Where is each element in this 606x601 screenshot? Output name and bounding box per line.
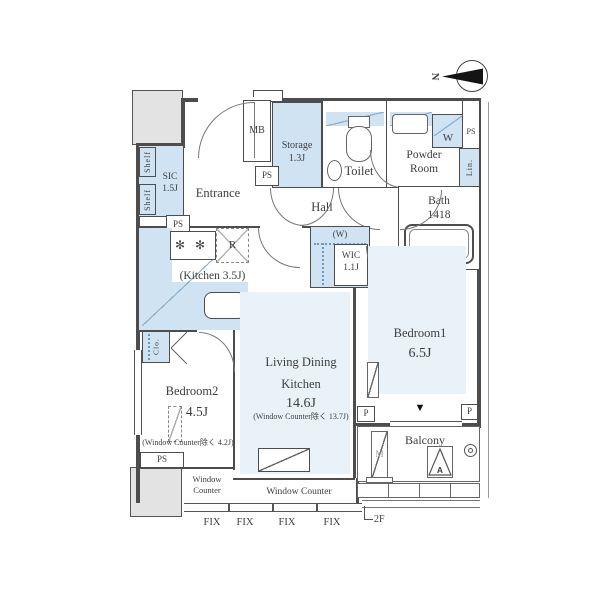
ps-mid-label: PS — [262, 170, 272, 181]
balcony-divider: M — [371, 431, 388, 479]
storage-door-arc — [270, 188, 304, 226]
railing-divider — [419, 484, 420, 497]
floor-label: 2F — [374, 514, 396, 527]
bedroom2-size: 4.5J — [142, 404, 252, 421]
wic-name: WIC — [335, 251, 367, 263]
wic-rail-v — [322, 243, 324, 285]
stove: ✻ ✻ — [170, 231, 216, 260]
bedroom1-label: Bedroom1 — [365, 326, 475, 342]
fridge-label: R — [217, 229, 248, 262]
wall-bedroom2-ldk — [233, 330, 235, 470]
balcony-railing — [357, 483, 480, 498]
hall-door-arc — [300, 188, 334, 226]
p-right-label: P — [467, 406, 472, 417]
toilet-bowl — [346, 126, 372, 162]
closet-fold-door-2 — [171, 348, 187, 364]
ps-entrance-label: PS — [173, 219, 183, 230]
bedroom1-floor — [368, 246, 466, 394]
storage-name: Storage — [272, 140, 322, 153]
fridge-space: R — [216, 228, 249, 263]
fix-mullion — [316, 504, 318, 511]
wc-small-line1: Window — [180, 474, 234, 485]
p-left-label: P — [363, 408, 368, 419]
fix-label-4: FIX — [312, 516, 352, 529]
hatch-label: A — [428, 465, 452, 476]
wic-inner: WIC 1.1J — [334, 244, 368, 286]
linen-label: Lin. — [465, 159, 475, 176]
floor-bracket — [364, 506, 373, 520]
burner-icon: ✻ — [195, 238, 205, 253]
burner-icon: ✻ — [175, 238, 185, 253]
entrance-door-leaf — [254, 102, 255, 158]
wic-label: WIC 1.1J — [335, 251, 367, 275]
floor-plan: Shelf Shelf SIC 1.5J PS Entrance MB Stor… — [0, 0, 606, 601]
compass-north-label: N — [428, 70, 441, 83]
building-edge-line — [488, 102, 489, 498]
ps-right-label: PS — [467, 127, 476, 137]
p-marker-right: P — [461, 404, 478, 420]
bedroom2-closet-label: Clo. — [143, 332, 169, 362]
entrance-label: Entrance — [182, 186, 254, 202]
balcony-label: Balcony — [380, 433, 470, 448]
wic-w-label: (W) — [318, 229, 362, 240]
ldk-door-arc — [258, 228, 300, 268]
bedroom1-size: 6.5J — [365, 345, 475, 363]
bedroom2-closet: Clo. — [142, 331, 170, 363]
entry-pointer: ▼ — [406, 402, 434, 416]
fix-window-band — [184, 503, 362, 512]
toilet-door-arc — [338, 188, 380, 230]
ps-bedroom2-label: PS — [157, 454, 167, 465]
wall-left-upper — [181, 98, 185, 148]
entrance-door-arc — [198, 102, 254, 158]
ldk-line1: Living Dining — [245, 355, 357, 371]
kitchen-label: (Kitchen 3.5J) — [150, 269, 275, 283]
balcony-drain-inner — [468, 448, 473, 453]
linen-box: Lin. — [459, 148, 480, 188]
wic-size: 1.1J — [335, 263, 367, 275]
fix-label-3: FIX — [267, 516, 307, 529]
washer-label: W — [432, 132, 464, 146]
bedroom2-door-arc — [199, 332, 235, 372]
storage-label: Storage 1.3J — [272, 140, 322, 165]
ldk-line2: Kitchen — [245, 377, 357, 393]
vanity — [392, 114, 428, 134]
bedroom1-leaf — [367, 362, 379, 398]
ldk-counter-board — [258, 448, 310, 472]
structure-block-top-left — [132, 90, 183, 145]
bedroom2-label: Bedroom2 — [137, 384, 247, 400]
fix-mullion — [272, 504, 274, 511]
railing-divider — [450, 484, 451, 497]
ps-mid: PS — [255, 166, 279, 186]
ldk-note: (Window Counter除く 13.7J) — [238, 412, 364, 422]
sic-name: SIC — [150, 172, 190, 184]
shelf-top-label: Shelf — [143, 151, 153, 173]
closet-rail — [148, 334, 150, 360]
wc-small-line2: Counter — [180, 485, 234, 496]
wall-ldk-bottom — [233, 478, 355, 480]
balcony-divider-label: M — [372, 432, 387, 478]
wc-bedroom2-label: Window Counter — [180, 474, 234, 495]
ps-bedroom2: PS — [140, 452, 184, 468]
ldk-size: 14.6J — [245, 395, 357, 413]
evacuation-hatch: A — [427, 446, 453, 478]
closet-fold-door-1 — [171, 332, 187, 348]
wc-ldk-label: Window Counter — [240, 487, 358, 499]
bedroom2-desk — [168, 406, 182, 442]
storage-size: 1.3J — [272, 153, 322, 166]
railing-divider — [388, 484, 389, 497]
lower-edge-line — [362, 500, 480, 508]
bedroom2-note: (Window Counter除く 4.2J) — [128, 438, 248, 448]
fix-mullion — [228, 504, 230, 511]
fix-label-2: FIX — [225, 516, 265, 529]
